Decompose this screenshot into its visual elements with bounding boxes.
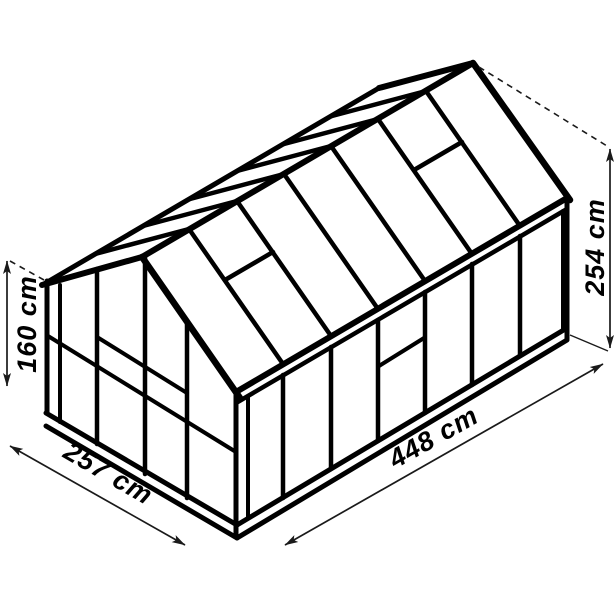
roof-ridge-and-left-slope bbox=[42, 63, 473, 285]
dimension-extension-dashed bbox=[479, 67, 607, 146]
eave-beam-upper bbox=[236, 198, 567, 392]
greenhouse-dimension-diagram: 160 cm 254 cm 257 cm 448 cm bbox=[0, 0, 615, 615]
dimension-extension-solid bbox=[570, 335, 608, 351]
drawing-canvas: 160 cm 254 cm 257 cm 448 cm bbox=[0, 0, 615, 615]
roof-window-crossbar-near bbox=[225, 252, 273, 280]
left-roof-bar bbox=[332, 91, 426, 116]
left-roof-bar bbox=[95, 229, 189, 254]
right-roof-slope bbox=[142, 63, 570, 403]
roof-window-crossbar-far bbox=[414, 142, 462, 170]
dimension-label-left-height: 160 cm bbox=[12, 275, 42, 373]
left-roof-bar bbox=[190, 174, 284, 199]
left-roof-bar bbox=[237, 146, 331, 171]
dimension-label-total-height: 254 cm bbox=[580, 198, 610, 297]
door-mid-rail bbox=[97, 337, 187, 393]
side-sill-top bbox=[237, 328, 567, 525]
left-roof-bar bbox=[284, 119, 378, 144]
dimension-label-side-length: 448 cm bbox=[383, 400, 484, 475]
dimension-left-height: 160 cm bbox=[7, 261, 44, 386]
near-left-roof-edge bbox=[42, 257, 142, 285]
eave-beam-lower bbox=[236, 209, 567, 403]
side-panel-divider bbox=[379, 338, 424, 366]
far-left-roof-edge bbox=[379, 63, 473, 88]
left-roof-bar bbox=[143, 201, 237, 226]
